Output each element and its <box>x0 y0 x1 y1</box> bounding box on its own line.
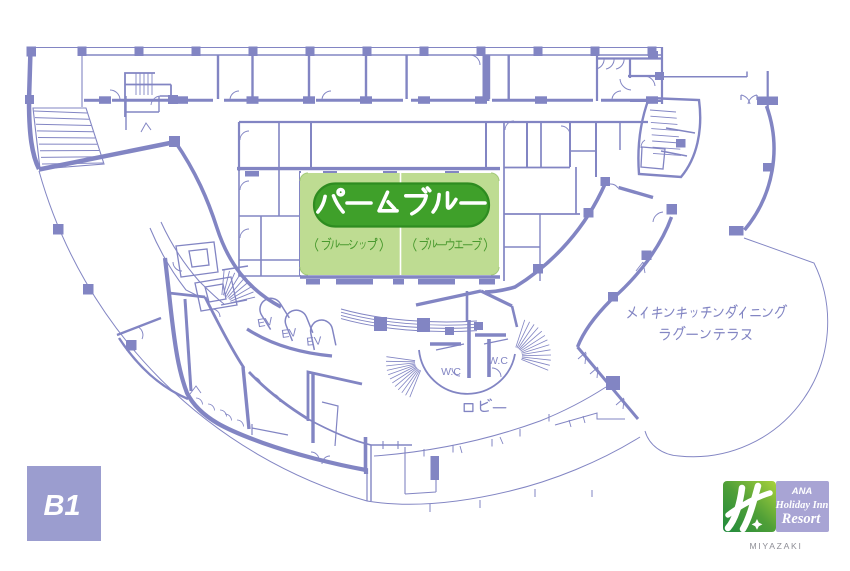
svg-text:EV: EV <box>306 335 323 349</box>
svg-text:ANA: ANA <box>791 486 813 497</box>
svg-text:EV: EV <box>281 327 298 341</box>
svg-text:B1: B1 <box>43 490 80 522</box>
svg-text:Resort: Resort <box>781 511 822 527</box>
svg-text:Holiday Inn: Holiday Inn <box>775 500 829 511</box>
svg-text:EV: EV <box>257 316 275 331</box>
svg-text:MIYAZAKI: MIYAZAKI <box>749 541 802 551</box>
svg-text:W.C: W.C <box>488 355 508 367</box>
svg-text:W.C: W.C <box>441 366 461 378</box>
